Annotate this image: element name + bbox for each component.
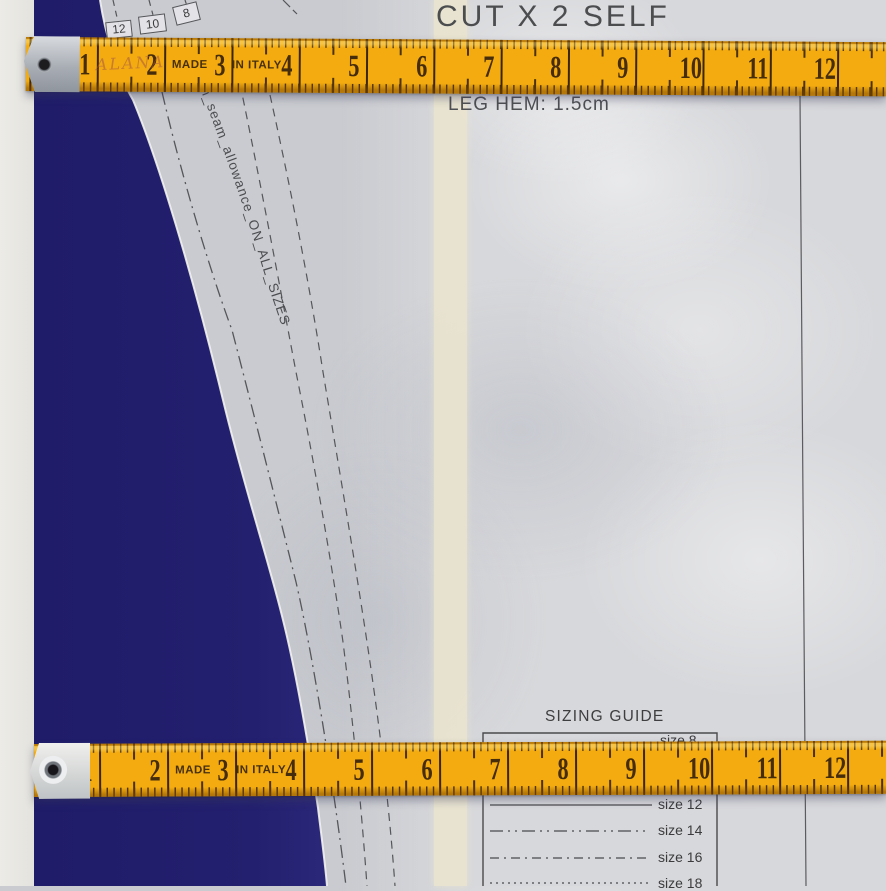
tape-number: 3 — [203, 38, 235, 92]
tape-number: 6 — [405, 39, 437, 93]
tape-made-label: MADE — [175, 743, 211, 796]
sizing-row-size18: size 18 — [658, 875, 702, 891]
sizing-row-size12: size 12 — [658, 796, 702, 812]
sizing-row-size16: size 16 — [658, 849, 702, 865]
size-flag-10: 10 — [138, 13, 167, 34]
tape-number: 12 — [819, 741, 851, 794]
cut-instruction-label: CUT X 2 SELF — [436, 0, 670, 34]
tape-number: 10 — [683, 741, 715, 794]
size-flag-12: 12 — [105, 20, 133, 40]
tape-made-label: MADE — [172, 38, 208, 92]
top-measuring-tape: 1 2 3 4 5 6 7 8 9 10 11 12 MADE IN ITALY… — [26, 37, 886, 96]
tape-number: 2 — [139, 743, 171, 796]
tape-number: 5 — [338, 39, 370, 93]
tape-number: 8 — [540, 40, 572, 94]
cut-line-stub — [283, 0, 297, 14]
tape-metal-end — [30, 743, 90, 799]
size-line-stub-10 — [149, 0, 153, 15]
tape-number: 11 — [742, 41, 774, 95]
tape-number: 7 — [473, 40, 505, 94]
tape-number: 12 — [809, 42, 841, 96]
tape-number: 3 — [207, 743, 239, 796]
sizing-row-size14: size 14 — [658, 822, 702, 838]
tape-number: 6 — [411, 742, 443, 795]
tape-number: 7 — [479, 742, 511, 795]
tape-number: 8 — [547, 742, 579, 795]
tape-grommet — [39, 756, 67, 784]
seam-allowance-note: m_seam_allowance_ON_ALL_SIZES — [196, 82, 293, 328]
tape-number: 9 — [615, 742, 647, 795]
tape-number: 11 — [751, 741, 783, 794]
tape-in-italy-label: IN ITALY — [236, 743, 286, 796]
sewing-pattern-photo: { "heading": { "cut_label": "CUT X 2 SEL… — [0, 0, 886, 886]
tape-in-italy-label: IN ITALY — [232, 38, 282, 92]
tape-number: 9 — [607, 41, 639, 95]
tape-number: 5 — [343, 743, 375, 796]
tape-metal-end — [24, 36, 80, 92]
leg-hem-label: LEG HEM: 1.5cm — [448, 94, 610, 116]
bottom-measuring-tape: 1 2 3 4 5 6 7 8 9 10 11 12 MADE IN ITALY — [34, 741, 886, 797]
sizing-guide-title: SIZING GUIDE — [545, 708, 664, 726]
handwriting-label: ALANA — [95, 36, 167, 93]
tape-end-hole — [37, 57, 52, 72]
tape-number: 10 — [675, 41, 707, 95]
